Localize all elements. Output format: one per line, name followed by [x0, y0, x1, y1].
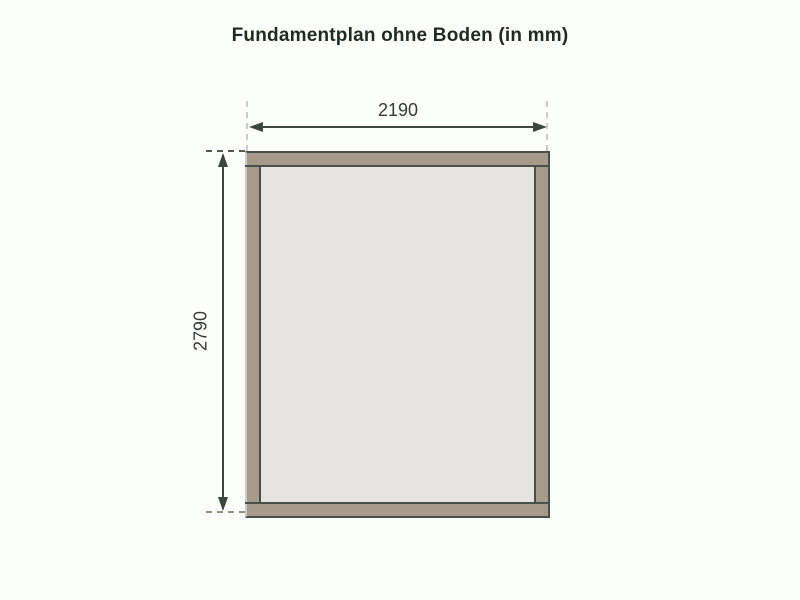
- extension-line-right: [546, 101, 548, 151]
- arrowhead-left-icon: [249, 122, 263, 132]
- extension-line-left: [246, 101, 248, 151]
- extension-line-bottom: [206, 511, 245, 513]
- foundation-frame: [245, 151, 550, 518]
- horizontal-dimension-label: 2190: [250, 100, 546, 121]
- foundation-interior: [259, 165, 536, 504]
- vertical-dimension-label: 2790: [191, 311, 212, 351]
- arrowhead-right-icon: [533, 122, 547, 132]
- extension-line-top: [206, 150, 245, 152]
- arrowhead-down-icon: [218, 497, 228, 511]
- arrowhead-up-icon: [218, 153, 228, 167]
- vertical-dimension-line: [222, 155, 224, 509]
- horizontal-dimension-line: [252, 126, 544, 128]
- page-title: Fundamentplan ohne Boden (in mm): [0, 25, 800, 47]
- foundation-plan-canvas: Fundamentplan ohne Boden (in mm) 2190 27…: [0, 0, 800, 600]
- vertical-dimension-label-wrap: 2790: [189, 153, 213, 509]
